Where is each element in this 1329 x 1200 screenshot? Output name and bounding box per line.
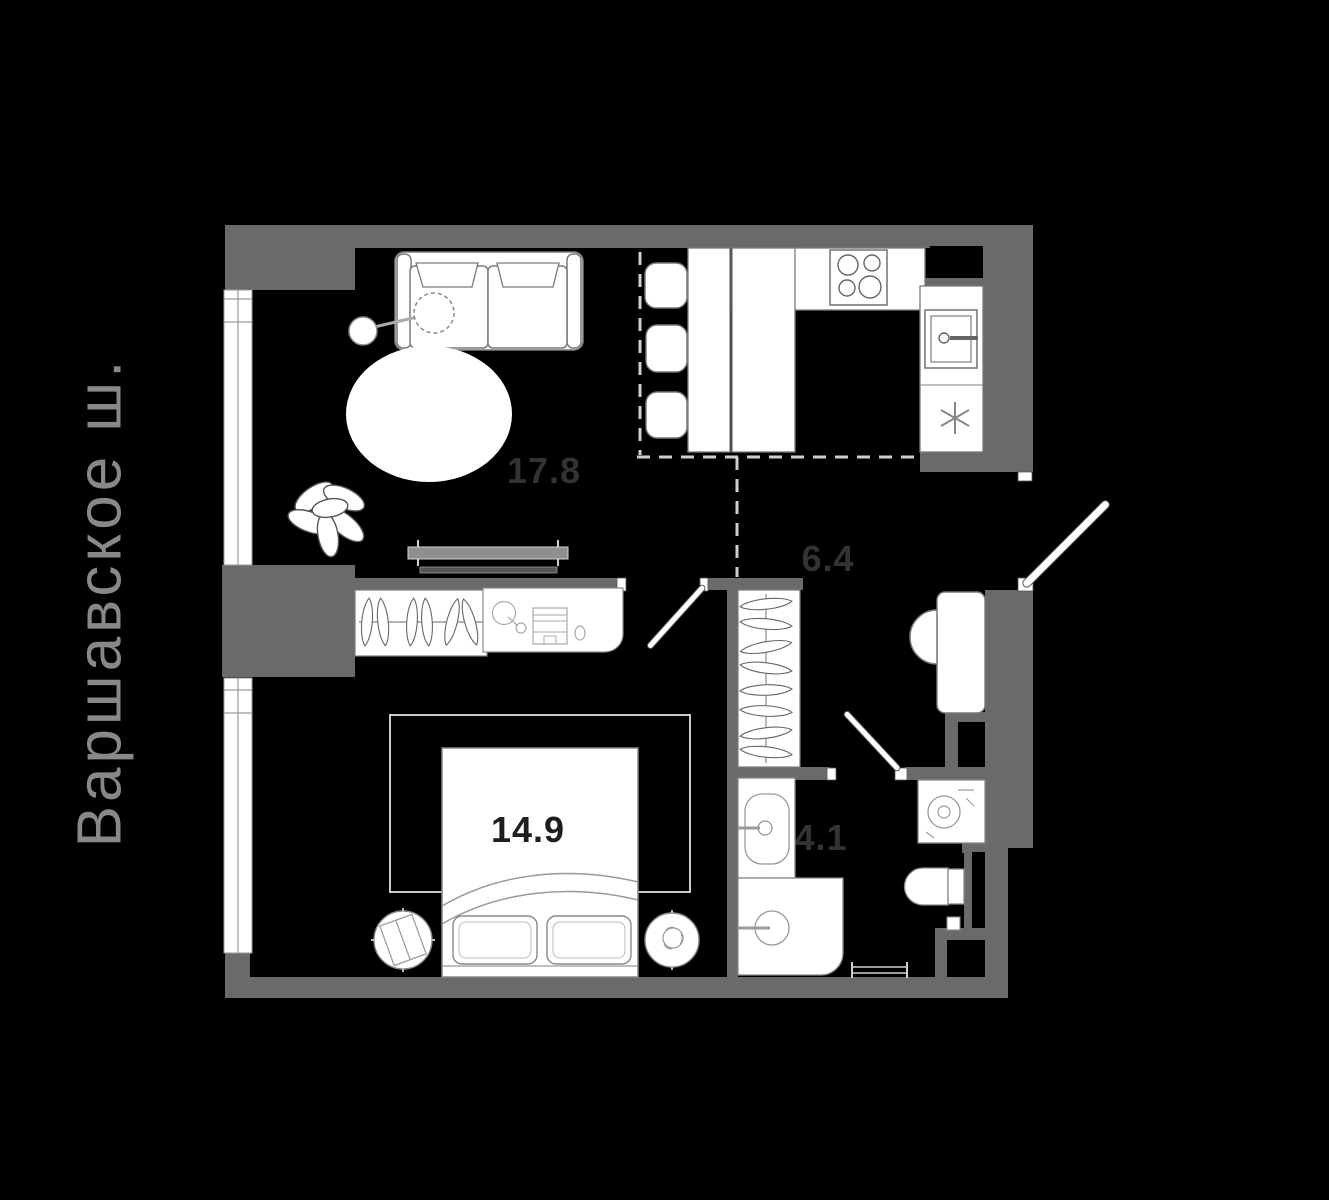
toilet-icon [905, 868, 965, 930]
room-area-label-bathroom: 4.1 [794, 817, 847, 858]
floor-plan-canvas: 17.8 [0, 0, 1329, 1200]
nightstand-icon [645, 910, 699, 970]
tv-stand-icon [408, 540, 568, 573]
interior-door-icon [617, 578, 708, 650]
round-rug-icon [346, 346, 512, 482]
bathroom-sink-icon [738, 778, 795, 878]
dressing-table-icon [483, 588, 623, 652]
floorplan-page: Варшавское ш. [0, 0, 1329, 1200]
window-icon [224, 678, 252, 953]
office-chair-icon [910, 610, 937, 664]
hallway-wardrobe-icon [738, 590, 800, 767]
wardrobe-icon [355, 590, 487, 656]
room-area-label-hallway: 6.4 [801, 538, 854, 579]
double-bed-icon [442, 748, 638, 977]
towel-rail-icon [852, 962, 907, 978]
chair-icon [645, 263, 687, 438]
interior-door-icon [827, 710, 907, 780]
nightstand-icon [371, 908, 435, 972]
plant-icon [285, 476, 369, 558]
room-area-label-bedroom: 14.9 [491, 809, 565, 850]
room-area-label-living: 17.8 [507, 450, 581, 491]
entrance-door-icon [1018, 472, 1111, 591]
shower-icon [738, 878, 843, 975]
dining-table-icon [688, 248, 730, 452]
desk-icon [937, 592, 985, 713]
washing-machine-icon [918, 780, 985, 843]
window-icon [224, 290, 252, 565]
